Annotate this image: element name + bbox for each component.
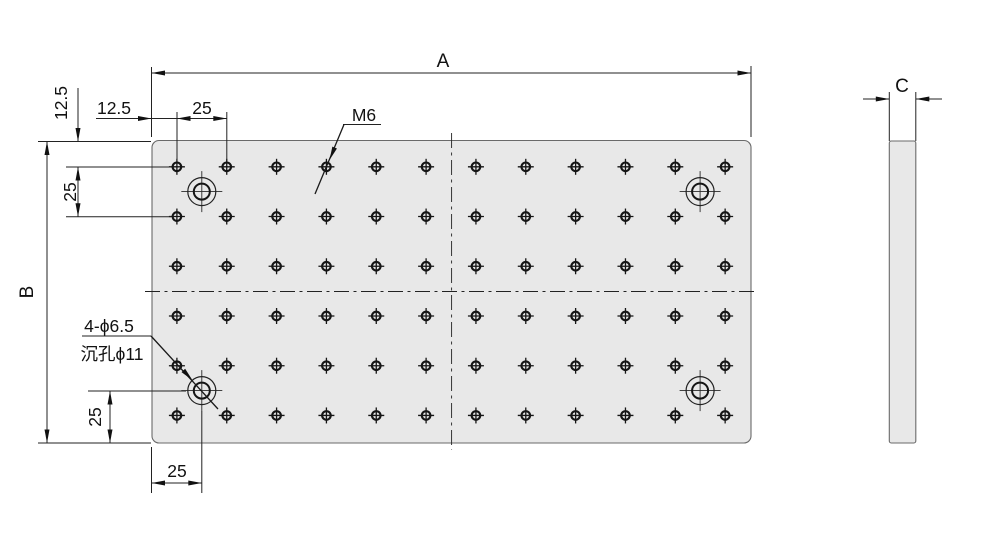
dim-a-label: A: [437, 51, 450, 72]
dim-width-A: A: [152, 51, 752, 137]
dim-b-label: B: [17, 286, 38, 299]
m6-label: M6: [352, 105, 376, 125]
dim-height-B: B: [17, 142, 151, 444]
cbore-offset-h-label: 25: [167, 461, 186, 481]
dim-edge-offset-vertical: 12.5: [51, 86, 78, 142]
cbore-callout-line1: 4-ϕ6.5: [84, 316, 134, 336]
edge-offset-v-label: 12.5: [51, 86, 71, 120]
front-view: A B 12.5 25 12.5 25: [17, 51, 758, 493]
plate-side: [889, 141, 916, 443]
edge-offset-h-label: 12.5: [97, 98, 131, 118]
engineering-drawing: A B 12.5 25 12.5 25: [0, 0, 991, 541]
pitch-h-label: 25: [192, 98, 211, 118]
cbore-offset-v-label: 25: [85, 407, 105, 426]
cbore-callout-line2: 沉孔ϕ11: [81, 344, 144, 364]
side-view: C: [863, 76, 942, 443]
dim-thickness-C: C: [863, 76, 942, 141]
dim-c-label: C: [895, 76, 909, 97]
pitch-v-label: 25: [60, 182, 80, 201]
